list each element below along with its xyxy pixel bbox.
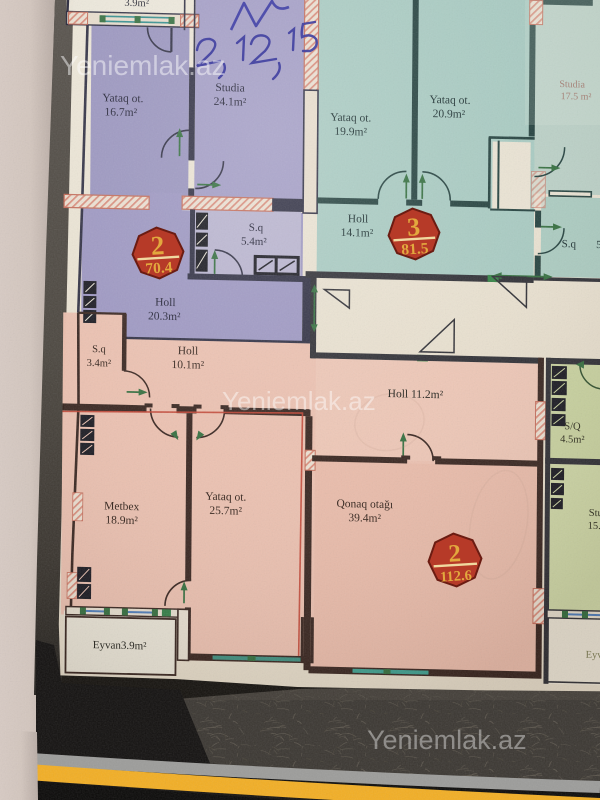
svg-text:81.5: 81.5 <box>401 240 429 259</box>
svg-text:2: 2 <box>150 230 165 261</box>
svg-text:3: 3 <box>406 212 421 242</box>
svg-text:Yeniemlak.az: Yeniemlak.az <box>60 50 226 81</box>
svg-text:70.4: 70.4 <box>145 259 173 278</box>
svg-text:112.6: 112.6 <box>440 568 473 586</box>
svg-text:Yeniemlak.az: Yeniemlak.az <box>367 725 527 755</box>
svg-text:Yeniemlak.az: Yeniemlak.az <box>222 386 376 416</box>
